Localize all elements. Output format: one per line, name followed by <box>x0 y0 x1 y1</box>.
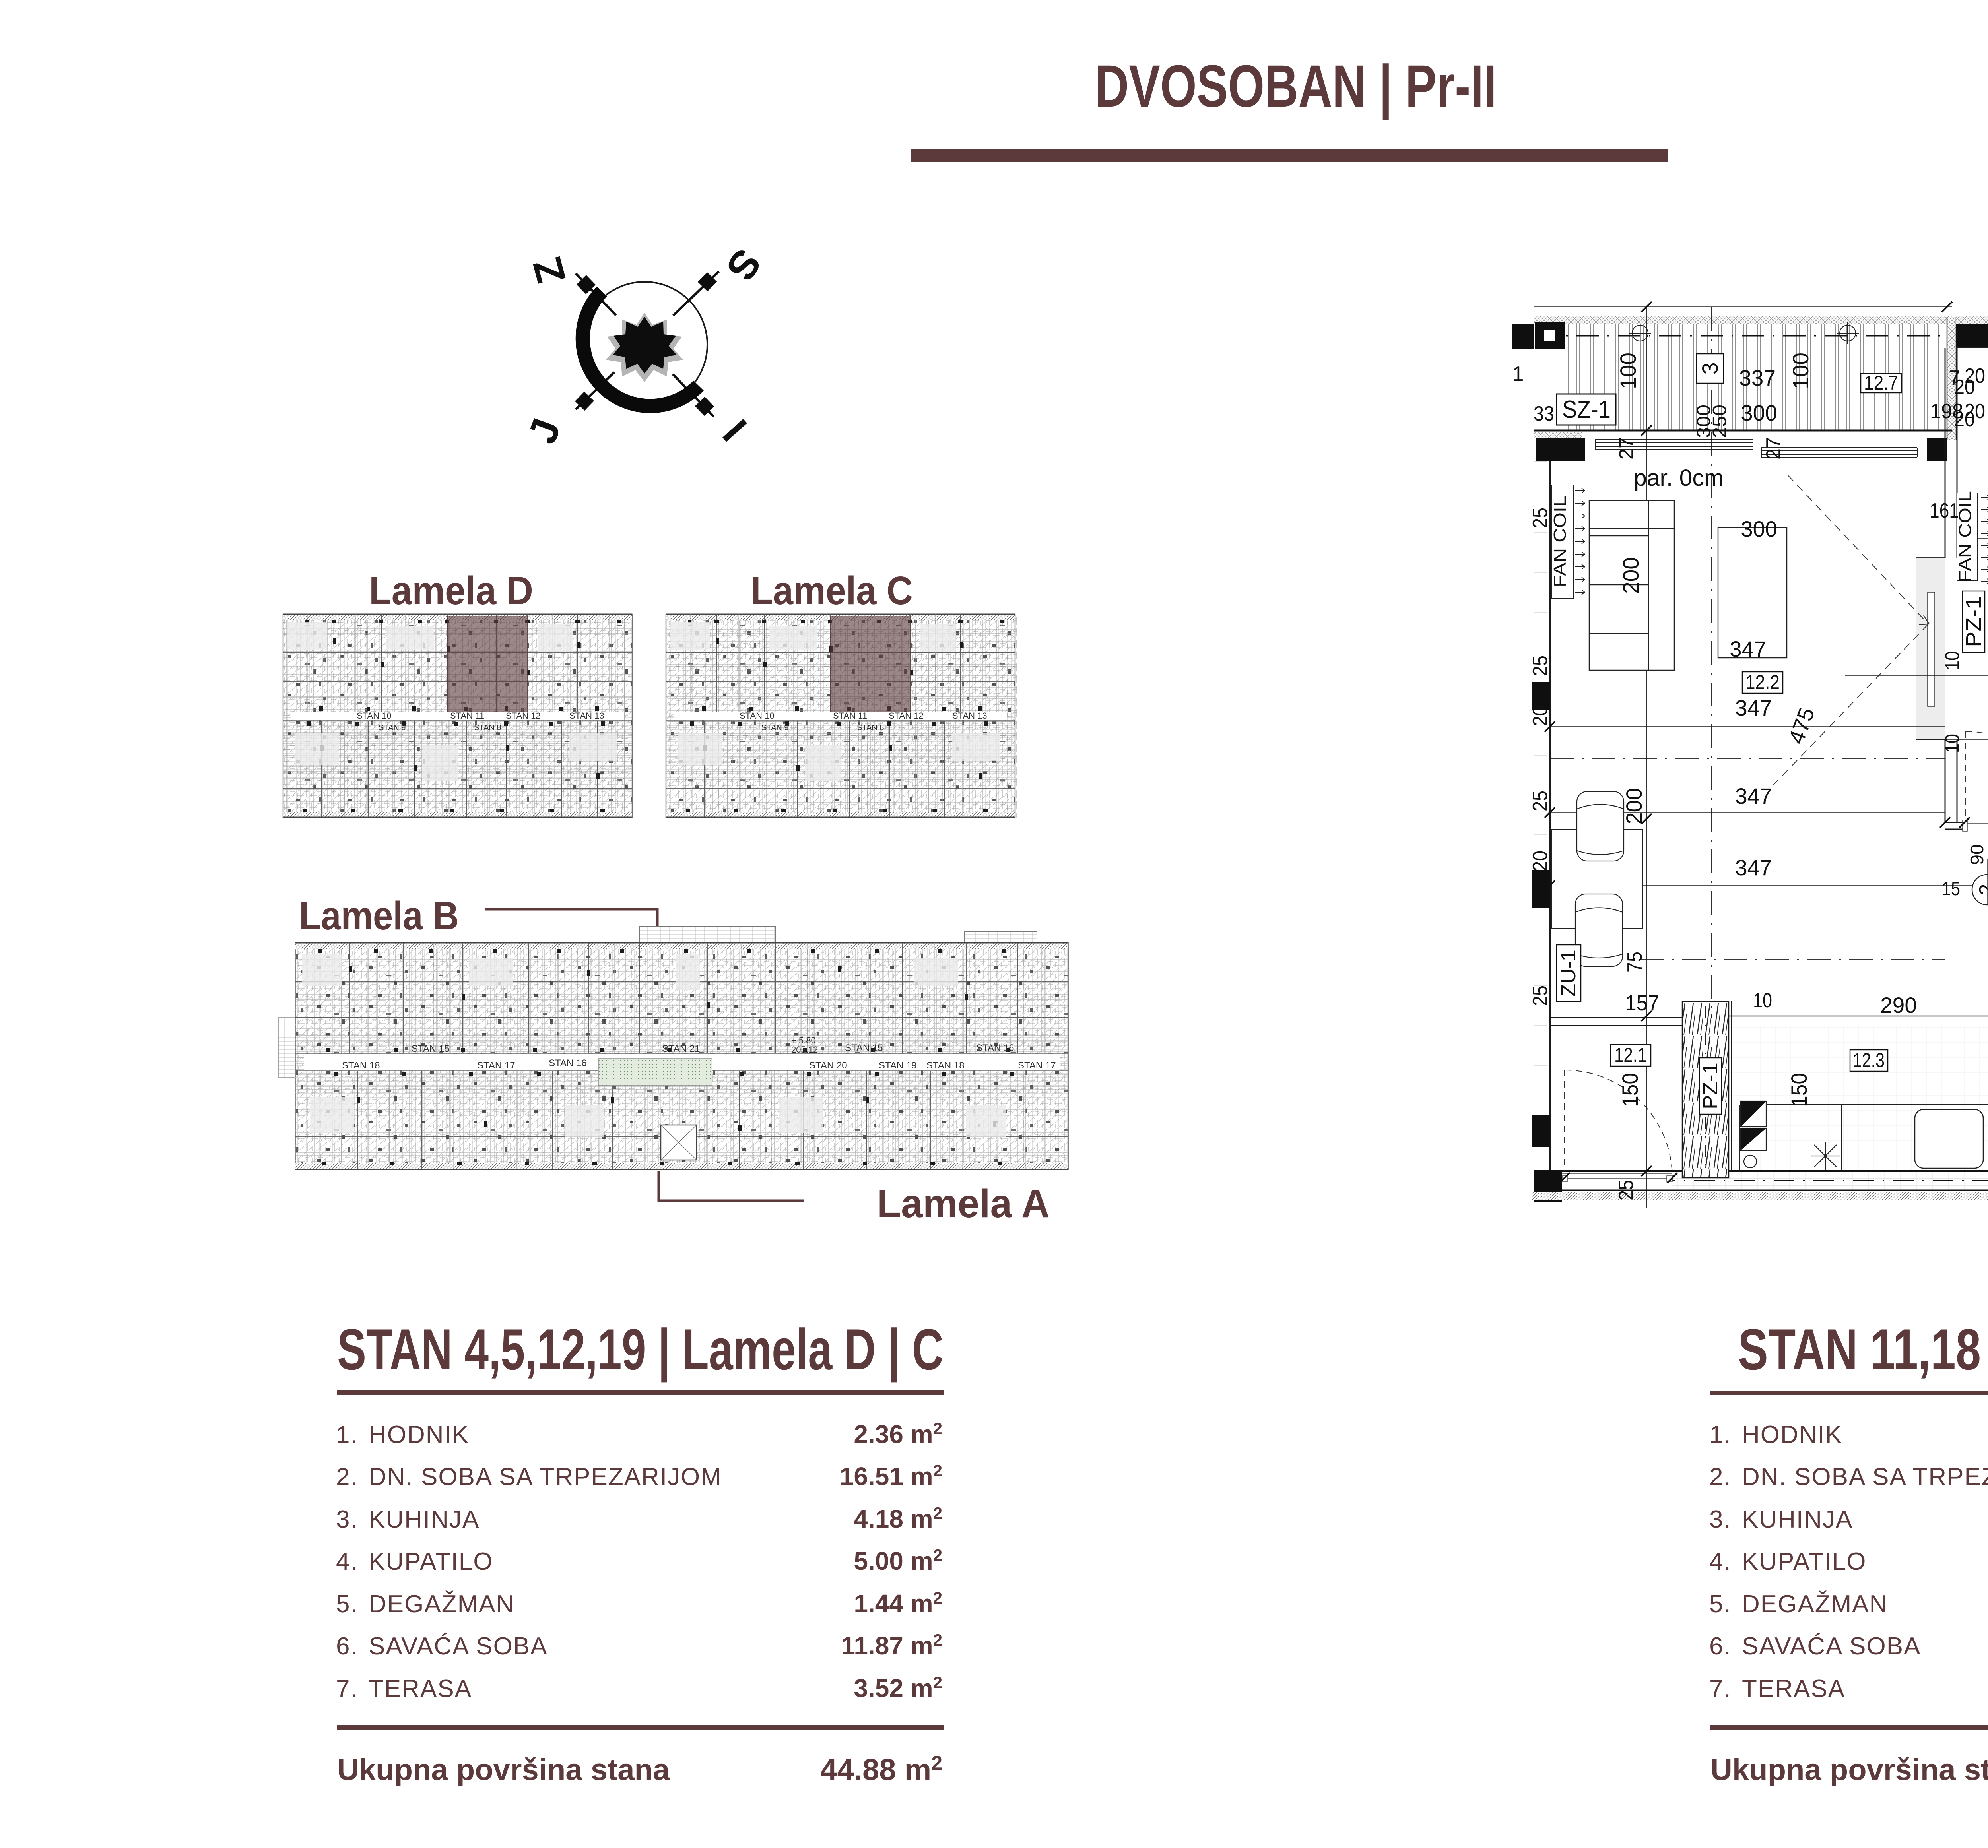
svg-text:DN. SOBA SA TRPEZARIJOM: DN. SOBA SA TRPEZARIJOM <box>1742 1463 1988 1491</box>
svg-text:12.3: 12.3 <box>1853 1049 1885 1071</box>
svg-text:STAN 13: STAN 13 <box>952 711 987 721</box>
svg-text:STAN 13: STAN 13 <box>569 711 604 721</box>
svg-text:1.: 1. <box>1709 1421 1732 1449</box>
svg-text:PZ-1: PZ-1 <box>1962 596 1986 647</box>
svg-text:DN. SOBA SA TRPEZARIJOM: DN. SOBA SA TRPEZARIJOM <box>369 1463 722 1491</box>
svg-text:10: 10 <box>1941 651 1963 670</box>
svg-text:12.2: 12.2 <box>1745 671 1780 693</box>
svg-text:STAN 12: STAN 12 <box>889 711 924 721</box>
svg-text:STAN 9: STAN 9 <box>761 723 789 732</box>
svg-text:337: 337 <box>1739 365 1776 390</box>
svg-text:5.: 5. <box>336 1590 358 1618</box>
svg-text:100: 100 <box>1615 353 1640 389</box>
svg-text:20: 20 <box>1529 851 1552 871</box>
svg-text:STAN 17: STAN 17 <box>1018 1060 1056 1071</box>
svg-text:347: 347 <box>1730 636 1766 661</box>
svg-text:STAN 12: STAN 12 <box>506 711 541 721</box>
svg-text:300: 300 <box>1741 400 1777 425</box>
svg-text:150: 150 <box>1786 1073 1811 1107</box>
svg-text:STAN 18: STAN 18 <box>926 1060 965 1071</box>
svg-text:27: 27 <box>1762 437 1784 460</box>
svg-text:STAN 11: STAN 11 <box>833 711 867 721</box>
svg-text:Lamela B: Lamela B <box>299 894 459 938</box>
svg-text:347: 347 <box>1735 695 1772 720</box>
svg-text:3: 3 <box>1697 362 1722 374</box>
svg-text:4.18 m2: 4.18 m2 <box>854 1504 942 1533</box>
svg-text:25: 25 <box>1529 791 1552 811</box>
svg-text:210: 210 <box>1984 839 1988 870</box>
svg-text:STAN 10: STAN 10 <box>740 711 775 721</box>
svg-text:TERASA: TERASA <box>1742 1675 1845 1703</box>
svg-text:TERASA: TERASA <box>369 1675 472 1703</box>
svg-text:SAVAĆA SOBA: SAVAĆA SOBA <box>1742 1633 1921 1660</box>
svg-text:STAN 11: STAN 11 <box>450 711 484 721</box>
svg-text:STAN 16: STAN 16 <box>976 1043 1014 1053</box>
svg-text:4.: 4. <box>336 1548 358 1575</box>
svg-text:5.00 m2: 5.00 m2 <box>854 1546 942 1575</box>
svg-text:FAN COIL: FAN COIL <box>1550 496 1570 587</box>
svg-text:HODNIK: HODNIK <box>1742 1421 1842 1449</box>
svg-text:STAN 9: STAN 9 <box>379 723 406 732</box>
svg-text:PZ-1: PZ-1 <box>1699 1063 1722 1109</box>
svg-text:1.44 m2: 1.44 m2 <box>854 1588 942 1618</box>
svg-text:STAN 20: STAN 20 <box>809 1060 847 1071</box>
svg-text:3.52 m2: 3.52 m2 <box>854 1673 942 1703</box>
svg-text:100: 100 <box>1788 353 1813 389</box>
svg-text:KUHINJA: KUHINJA <box>369 1506 480 1533</box>
svg-text:200: 200 <box>1618 557 1643 594</box>
svg-text:+ 5.80: + 5.80 <box>791 1036 816 1045</box>
svg-text:10: 10 <box>1753 989 1772 1012</box>
svg-text:3.: 3. <box>336 1506 358 1533</box>
svg-text:300: 300 <box>1741 516 1777 541</box>
svg-text:DEGAŽMAN: DEGAŽMAN <box>1742 1590 1888 1618</box>
svg-text:STAN 8: STAN 8 <box>474 723 501 732</box>
svg-text:STAN 11,18 | Lamela D | C: STAN 11,18 | Lamela D | C <box>1738 1317 1988 1383</box>
svg-text:205.12: 205.12 <box>791 1045 818 1055</box>
svg-text:DEGAŽMAN: DEGAŽMAN <box>369 1590 514 1618</box>
svg-text:STAN 15: STAN 15 <box>845 1043 883 1053</box>
svg-text:290: 290 <box>1880 993 1917 1018</box>
svg-text:STAN 18: STAN 18 <box>342 1060 380 1071</box>
svg-text:347: 347 <box>1735 783 1772 809</box>
svg-text:SAVAĆA SOBA: SAVAĆA SOBA <box>369 1633 547 1660</box>
svg-text:STAN 17: STAN 17 <box>477 1060 515 1071</box>
svg-text:STAN 19: STAN 19 <box>879 1060 917 1071</box>
svg-text:2.36 m2: 2.36 m2 <box>854 1419 942 1449</box>
svg-text:250: 250 <box>1709 405 1730 438</box>
svg-text:STAN 8: STAN 8 <box>857 723 884 732</box>
svg-text:Lamela C: Lamela C <box>751 568 913 613</box>
svg-text:ZU-1: ZU-1 <box>1557 950 1580 997</box>
svg-text:1: 1 <box>1512 363 1524 386</box>
svg-text:STAN 15: STAN 15 <box>412 1043 450 1054</box>
svg-text:2.: 2. <box>336 1463 358 1491</box>
svg-text:12.1: 12.1 <box>1614 1044 1647 1066</box>
svg-text:Lamela D: Lamela D <box>369 568 533 613</box>
svg-text:20: 20 <box>1954 408 1975 431</box>
svg-text:KUHINJA: KUHINJA <box>1742 1506 1853 1533</box>
svg-text:33: 33 <box>1534 402 1554 425</box>
svg-text:161: 161 <box>1930 499 1959 522</box>
svg-text:7.: 7. <box>336 1675 358 1703</box>
svg-text:16.51 m2: 16.51 m2 <box>840 1461 942 1491</box>
svg-text:4.: 4. <box>1709 1548 1732 1575</box>
svg-text:Ukupna površina stana: Ukupna površina stana <box>337 1753 670 1787</box>
svg-text:10: 10 <box>1941 734 1963 753</box>
svg-text:STAN 16: STAN 16 <box>549 1058 587 1068</box>
svg-text:STAN 21: STAN 21 <box>662 1043 700 1054</box>
svg-text:157: 157 <box>1625 990 1659 1015</box>
svg-text:7.: 7. <box>1709 1675 1732 1703</box>
svg-text:3.: 3. <box>1709 1506 1732 1533</box>
svg-text:KUPATILO: KUPATILO <box>1742 1548 1866 1575</box>
svg-text:20: 20 <box>1529 706 1552 726</box>
svg-text:par. 0cm: par. 0cm <box>1634 465 1724 491</box>
svg-text:DVOSOBAN | Pr-II: DVOSOBAN | Pr-II <box>1095 52 1497 120</box>
svg-text:25: 25 <box>1615 1180 1638 1200</box>
svg-text:11.87 m2: 11.87 m2 <box>841 1631 942 1660</box>
svg-text:27: 27 <box>1615 437 1637 460</box>
svg-text:STAN 4,5,12,19 | Lamela D | C: STAN 4,5,12,19 | Lamela D | C <box>337 1317 944 1383</box>
svg-text:Lamela A: Lamela A <box>877 1181 1050 1226</box>
svg-text:25: 25 <box>1529 655 1552 676</box>
svg-text:5.: 5. <box>1709 1590 1732 1618</box>
svg-text:STAN 10: STAN 10 <box>357 711 392 721</box>
svg-text:25: 25 <box>1529 508 1552 528</box>
svg-text:12.7: 12.7 <box>1864 372 1898 394</box>
svg-text:44.88 m2: 44.88 m2 <box>820 1752 942 1787</box>
svg-text:150: 150 <box>1617 1073 1642 1107</box>
svg-text:6.: 6. <box>1709 1633 1732 1660</box>
svg-text:200: 200 <box>1621 788 1646 824</box>
svg-text:75: 75 <box>1623 952 1646 972</box>
svg-text:HODNIK: HODNIK <box>369 1421 469 1449</box>
svg-text:347: 347 <box>1735 855 1772 880</box>
svg-text:20: 20 <box>1954 376 1975 399</box>
svg-text:KUPATILO: KUPATILO <box>369 1548 493 1575</box>
svg-text:1.: 1. <box>336 1421 358 1449</box>
svg-text:6.: 6. <box>336 1633 358 1660</box>
svg-text:2.: 2. <box>1709 1463 1732 1491</box>
svg-text:25: 25 <box>1529 985 1552 1006</box>
svg-text:15: 15 <box>1942 878 1960 900</box>
svg-text:SZ-1: SZ-1 <box>1562 396 1611 423</box>
svg-text:Ukupna površina stana: Ukupna površina stana <box>1710 1753 1988 1787</box>
svg-text:2: 2 <box>1975 884 1988 896</box>
